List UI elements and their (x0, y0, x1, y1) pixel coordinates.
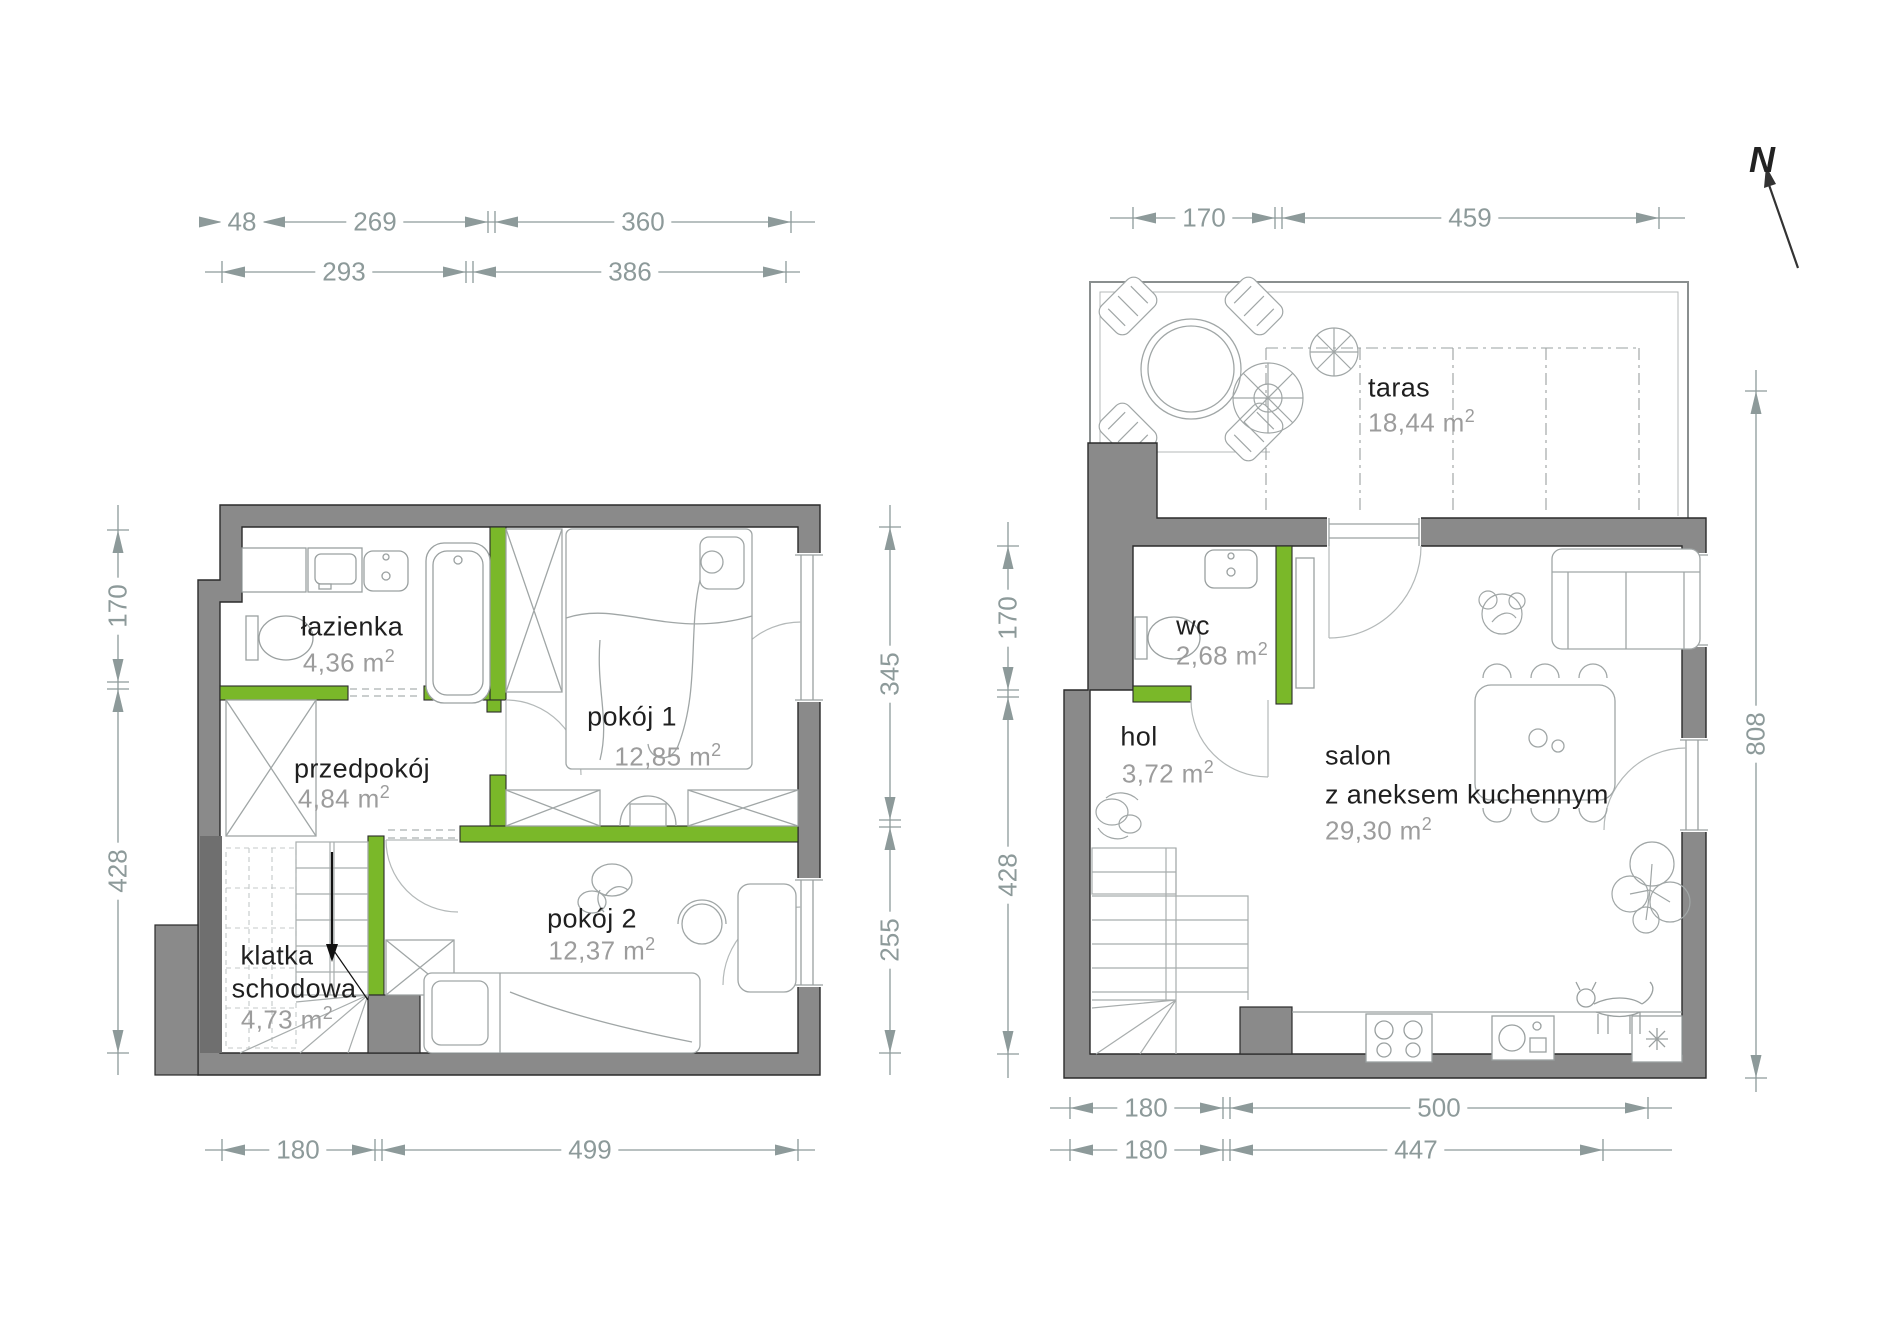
room-label-pokoj1: pokój 1 (587, 702, 677, 733)
dim-left-top2-386: 386 (601, 257, 658, 288)
room-area-hol: 3,72 m2 (1122, 759, 1214, 790)
room-label-pokoj2: pokój 2 (547, 904, 637, 935)
closet-strip (1296, 558, 1314, 688)
room-area-pokoj1: 12,85 m2 (614, 742, 721, 773)
outer-wall-extension (155, 925, 198, 1075)
terrace-plant-icon (1233, 363, 1303, 433)
pokoj2-doorway (388, 830, 456, 838)
room-area-lazienka: 4,36 m2 (303, 648, 395, 679)
stove-icon (1366, 1014, 1432, 1062)
kitchen-wall-stub (1240, 1007, 1292, 1054)
kitchen-sink-icon (1492, 1016, 1554, 1060)
dim-right-b1-500: 500 (1410, 1093, 1467, 1124)
dim-right-b1-180: 180 (1117, 1093, 1174, 1124)
room-area-pokoj2: 12,37 m2 (548, 936, 655, 967)
dim-right-top-459: 459 (1441, 203, 1498, 234)
dim-right-b2-180: 180 (1117, 1135, 1174, 1166)
dim-left-top1-269: 269 (346, 207, 403, 238)
dim-left-right-345: 345 (875, 645, 906, 702)
dim-right-side-170: 170 (993, 589, 1024, 646)
room-label-klatka-line2: schodowa (232, 974, 357, 1005)
dim-right-b2-447: 447 (1387, 1135, 1444, 1166)
dim-right-side-808: 808 (1741, 705, 1772, 762)
dim-left-side-170: 170 (103, 577, 134, 634)
plant-icon-sofa (1479, 591, 1525, 634)
wall-stub-klatka (368, 995, 420, 1053)
room-label-lazienka: łazienka (301, 612, 403, 643)
dim-left-bottom-180: 180 (269, 1135, 326, 1166)
dim-left-right-255: 255 (875, 911, 906, 968)
dresser-icon (506, 790, 600, 826)
room-area-wc: 2,68 m2 (1176, 641, 1268, 672)
room-area-taras: 18,44 m2 (1368, 408, 1475, 439)
party-wall (200, 836, 222, 1053)
lazienka-sliding-door (350, 689, 422, 696)
sofa-icon (1552, 549, 1700, 649)
north-label: N (1749, 139, 1775, 181)
cabinet-icon (242, 548, 306, 592)
room-label-przedpokoj: przedpokój (294, 754, 430, 785)
terrace-plant-icon-2 (1310, 328, 1358, 376)
dresser-icon-2 (688, 790, 798, 826)
dimension-arrows (113, 213, 1762, 1156)
room-label-klatka-line1: klatka (241, 941, 314, 972)
terrace-table-icon (1141, 319, 1241, 419)
room-label-taras: taras (1368, 373, 1430, 404)
wardrobe-icon (506, 529, 562, 692)
terrace-door (1327, 516, 1421, 638)
plant-icon-large (1612, 842, 1690, 933)
dim-right-side-428: 428 (993, 846, 1024, 903)
window-salon-2 (1604, 738, 1708, 832)
room-area-przedpokoj: 4,84 m2 (298, 784, 390, 815)
floorplan-page: łazienka 4,36 m2 pokój 1 12,85 m2 przedp… (0, 0, 1900, 1343)
wc-sink-icon (1205, 550, 1257, 588)
room-area-salon: 29,30 m2 (1325, 816, 1432, 847)
washer-icon (308, 548, 362, 592)
dim-left-bottom-499: 499 (561, 1135, 618, 1166)
dim-left-side-428: 428 (103, 842, 134, 899)
stairs-icon-right (1092, 848, 1248, 1054)
coat-rack-icon (1096, 793, 1141, 839)
north-arrow-icon (1764, 166, 1798, 268)
bed-single-icon (424, 973, 700, 1053)
pokoj2-door-arc (386, 840, 458, 912)
dim-right-top-170: 170 (1175, 203, 1232, 234)
dim-left-top1-360: 360 (614, 207, 671, 238)
room-label-hol: hol (1120, 722, 1157, 753)
snowflake-icon (1646, 1028, 1668, 1050)
dim-left-top2-293: 293 (315, 257, 372, 288)
room-label-salon-line2: z aneksem kuchennym (1325, 780, 1609, 811)
chair-desk-icon (620, 796, 676, 826)
room-area-klatka: 4,73 m2 (241, 1005, 333, 1036)
sink-icon (364, 551, 408, 591)
dim-left-top1-48: 48 (221, 207, 264, 238)
room-label-wc: wc (1176, 611, 1210, 642)
bed-double-icon (566, 529, 752, 769)
room-label-salon-line1: salon (1325, 741, 1392, 772)
